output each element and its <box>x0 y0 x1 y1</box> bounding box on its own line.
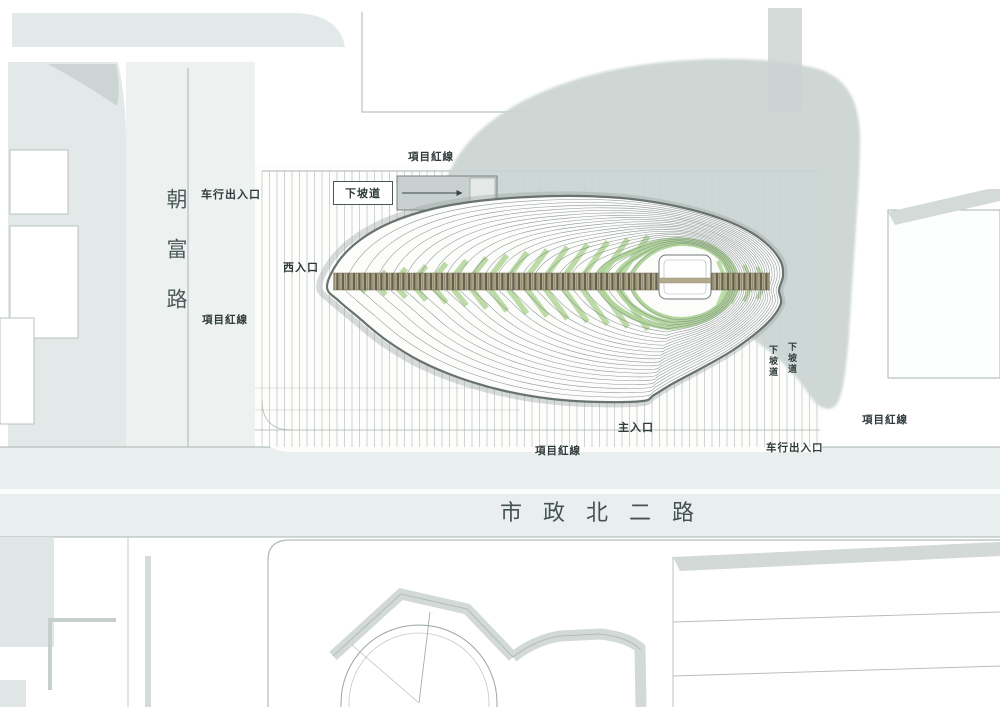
site-plan-page: 朝富路 市政北二路 车行出入口 下坡道 項目紅線 西入口 項目紅線 主入口 項目… <box>0 0 1000 707</box>
redline-right-label: 項目紅線 <box>862 415 908 426</box>
vehicle-entry-se-label: 车行出入口 <box>766 443 824 454</box>
redline-top-label: 項目紅線 <box>408 152 454 163</box>
west-entrance-label: 西入口 <box>283 263 319 274</box>
west-road-name: 朝富路 <box>160 188 190 338</box>
top-ramp-label: 下坡道 <box>333 181 393 205</box>
vehicle-entry-nw-label: 车行出入口 <box>201 190 261 201</box>
ramp-right-label-1: 下坡道 <box>768 345 777 378</box>
south-road-name: 市政北二路 <box>500 495 715 527</box>
main-entrance-label: 主入口 <box>618 423 654 434</box>
site-plan-drawing <box>0 0 1000 707</box>
ramp-right-label-2: 下坡道 <box>787 342 796 375</box>
redline-left-label: 項目紅線 <box>202 315 248 326</box>
redline-bottom-label: 項目紅線 <box>535 446 581 457</box>
